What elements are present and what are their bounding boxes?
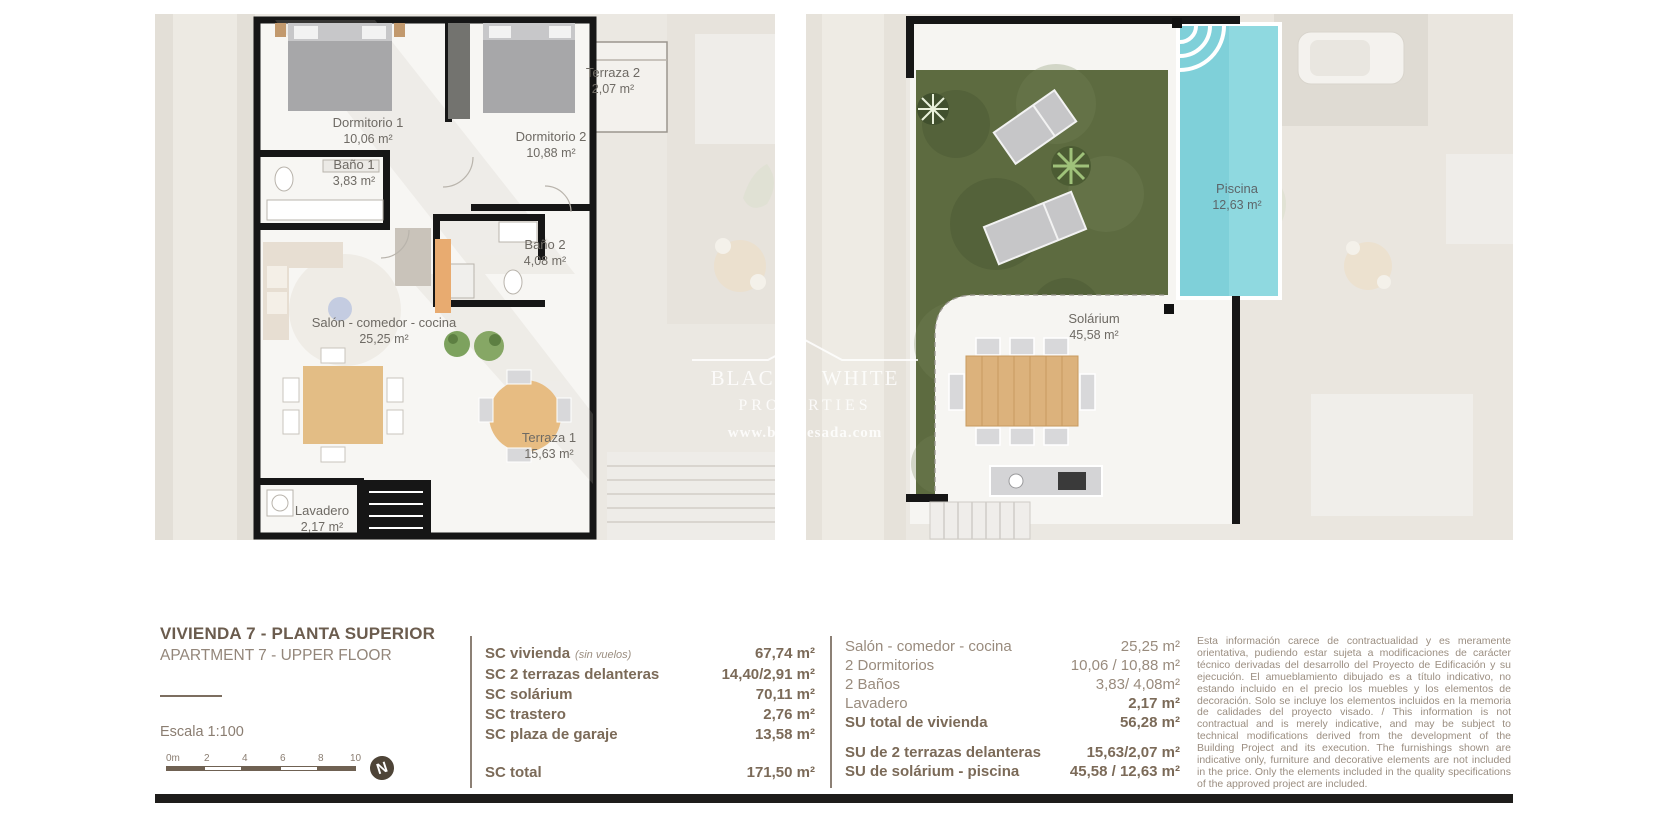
floorplan-sheet: Dormitorio 1 10,06 m² Dormitorio 2 10,88… — [0, 0, 1668, 820]
room-label-bano-2: Baño 2 4,08 m² — [524, 236, 566, 270]
floorplan-solarium-drawing — [806, 14, 1513, 540]
room-label-dormitorio-2: Dormitorio 2 10,88 m² — [516, 128, 587, 162]
scale-bar: 0m 2 4 6 8 10 N — [160, 753, 410, 783]
room-label-solarium: Solárium 45,58 m² — [1068, 310, 1119, 344]
scale-tick: 4 — [242, 753, 248, 764]
floorplan-upper-floor: Dormitorio 1 10,06 m² Dormitorio 2 10,88… — [155, 14, 775, 540]
table-row: SU de 2 terrazas delanteras 15,63/2,07 m… — [845, 743, 1180, 762]
table-row: 2 Baños 3,83/ 4,08m² — [845, 675, 1180, 694]
su-table: Salón - comedor - cocina 25,25 m² 2 Dorm… — [845, 637, 1180, 781]
brand-url: www.bwquesada.com — [692, 425, 918, 442]
brand-subtitle: PROPERTIES — [692, 397, 918, 415]
sc-table: SC vivienda (sin vuelos) 67,74 m² SC 2 t… — [485, 644, 815, 783]
legal-disclaimer: Esta información carece de contractualid… — [1197, 636, 1511, 791]
room-label-lavadero: Lavadero 2,17 m² — [295, 502, 349, 536]
room-label-terraza-2: Terraza 2 2,07 m² — [586, 64, 640, 98]
title-divider — [160, 695, 222, 697]
floorplan-upper-floor-drawing — [155, 14, 775, 540]
title-block: VIVIENDA 7 - PLANTA SUPERIOR APARTMENT 7… — [160, 624, 460, 740]
room-label-terraza-1: Terraza 1 15,63 m² — [522, 429, 576, 463]
column-divider — [830, 636, 832, 788]
table-row: SU de solárium - piscina 45,58 / 12,63 m… — [845, 762, 1180, 781]
scale-tick: 0m — [166, 753, 180, 764]
scale-tick: 2 — [204, 753, 210, 764]
brand-left: BLACK — [711, 366, 792, 391]
room-label-piscina: Piscina 12,63 m² — [1212, 180, 1261, 214]
scale-tick: 8 — [318, 753, 324, 764]
page-title: VIVIENDA 7 - PLANTA SUPERIOR — [160, 624, 460, 644]
scale-tick: 6 — [280, 753, 286, 764]
table-row: Salón - comedor - cocina 25,25 m² — [845, 637, 1180, 656]
floorplan-solarium-level: Piscina 12,63 m² Solárium 45,58 m² — [806, 14, 1513, 540]
table-row: Lavadero 2,17 m² — [845, 694, 1180, 713]
table-row: 2 Dormitorios 10,06 / 10,88 m² — [845, 656, 1180, 675]
table-row: SC trastero 2,76 m² — [485, 705, 815, 725]
roof-icon — [692, 336, 918, 364]
room-label-salon-comedor-cocina: Salón - comedor - cocina 25,25 m² — [312, 314, 457, 348]
scale-tick: 10 — [350, 753, 361, 764]
table-row: SC plaza de garaje 13,58 m² — [485, 725, 815, 745]
table-row-total: SU total de vivienda 56,28 m² — [845, 713, 1180, 732]
brand-right: WHITE — [822, 366, 900, 391]
table-row-total: SC total 171,50 m² — [485, 763, 815, 783]
table-row: SC 2 terrazas delanteras 14,40/2,91 m² — [485, 665, 815, 685]
page-subtitle: APARTMENT 7 - UPPER FLOOR — [160, 647, 460, 665]
north-compass-icon: N — [367, 753, 397, 783]
table-row: SC vivienda (sin vuelos) 67,74 m² — [485, 644, 815, 665]
bottom-bar — [155, 794, 1513, 803]
scale-label: Escala 1:100 — [160, 724, 460, 740]
agency-watermark: BLACK WHITE PROPERTIES www.bwquesada.com — [692, 336, 918, 442]
brand-name: BLACK WHITE — [692, 366, 918, 391]
table-row: SC solárium 70,11 m² — [485, 685, 815, 705]
room-label-dormitorio-1: Dormitorio 1 10,06 m² — [333, 114, 404, 148]
room-label-bano-1: Baño 1 3,83 m² — [333, 156, 375, 190]
column-divider — [470, 636, 472, 788]
scale-bar-segments — [166, 766, 356, 771]
